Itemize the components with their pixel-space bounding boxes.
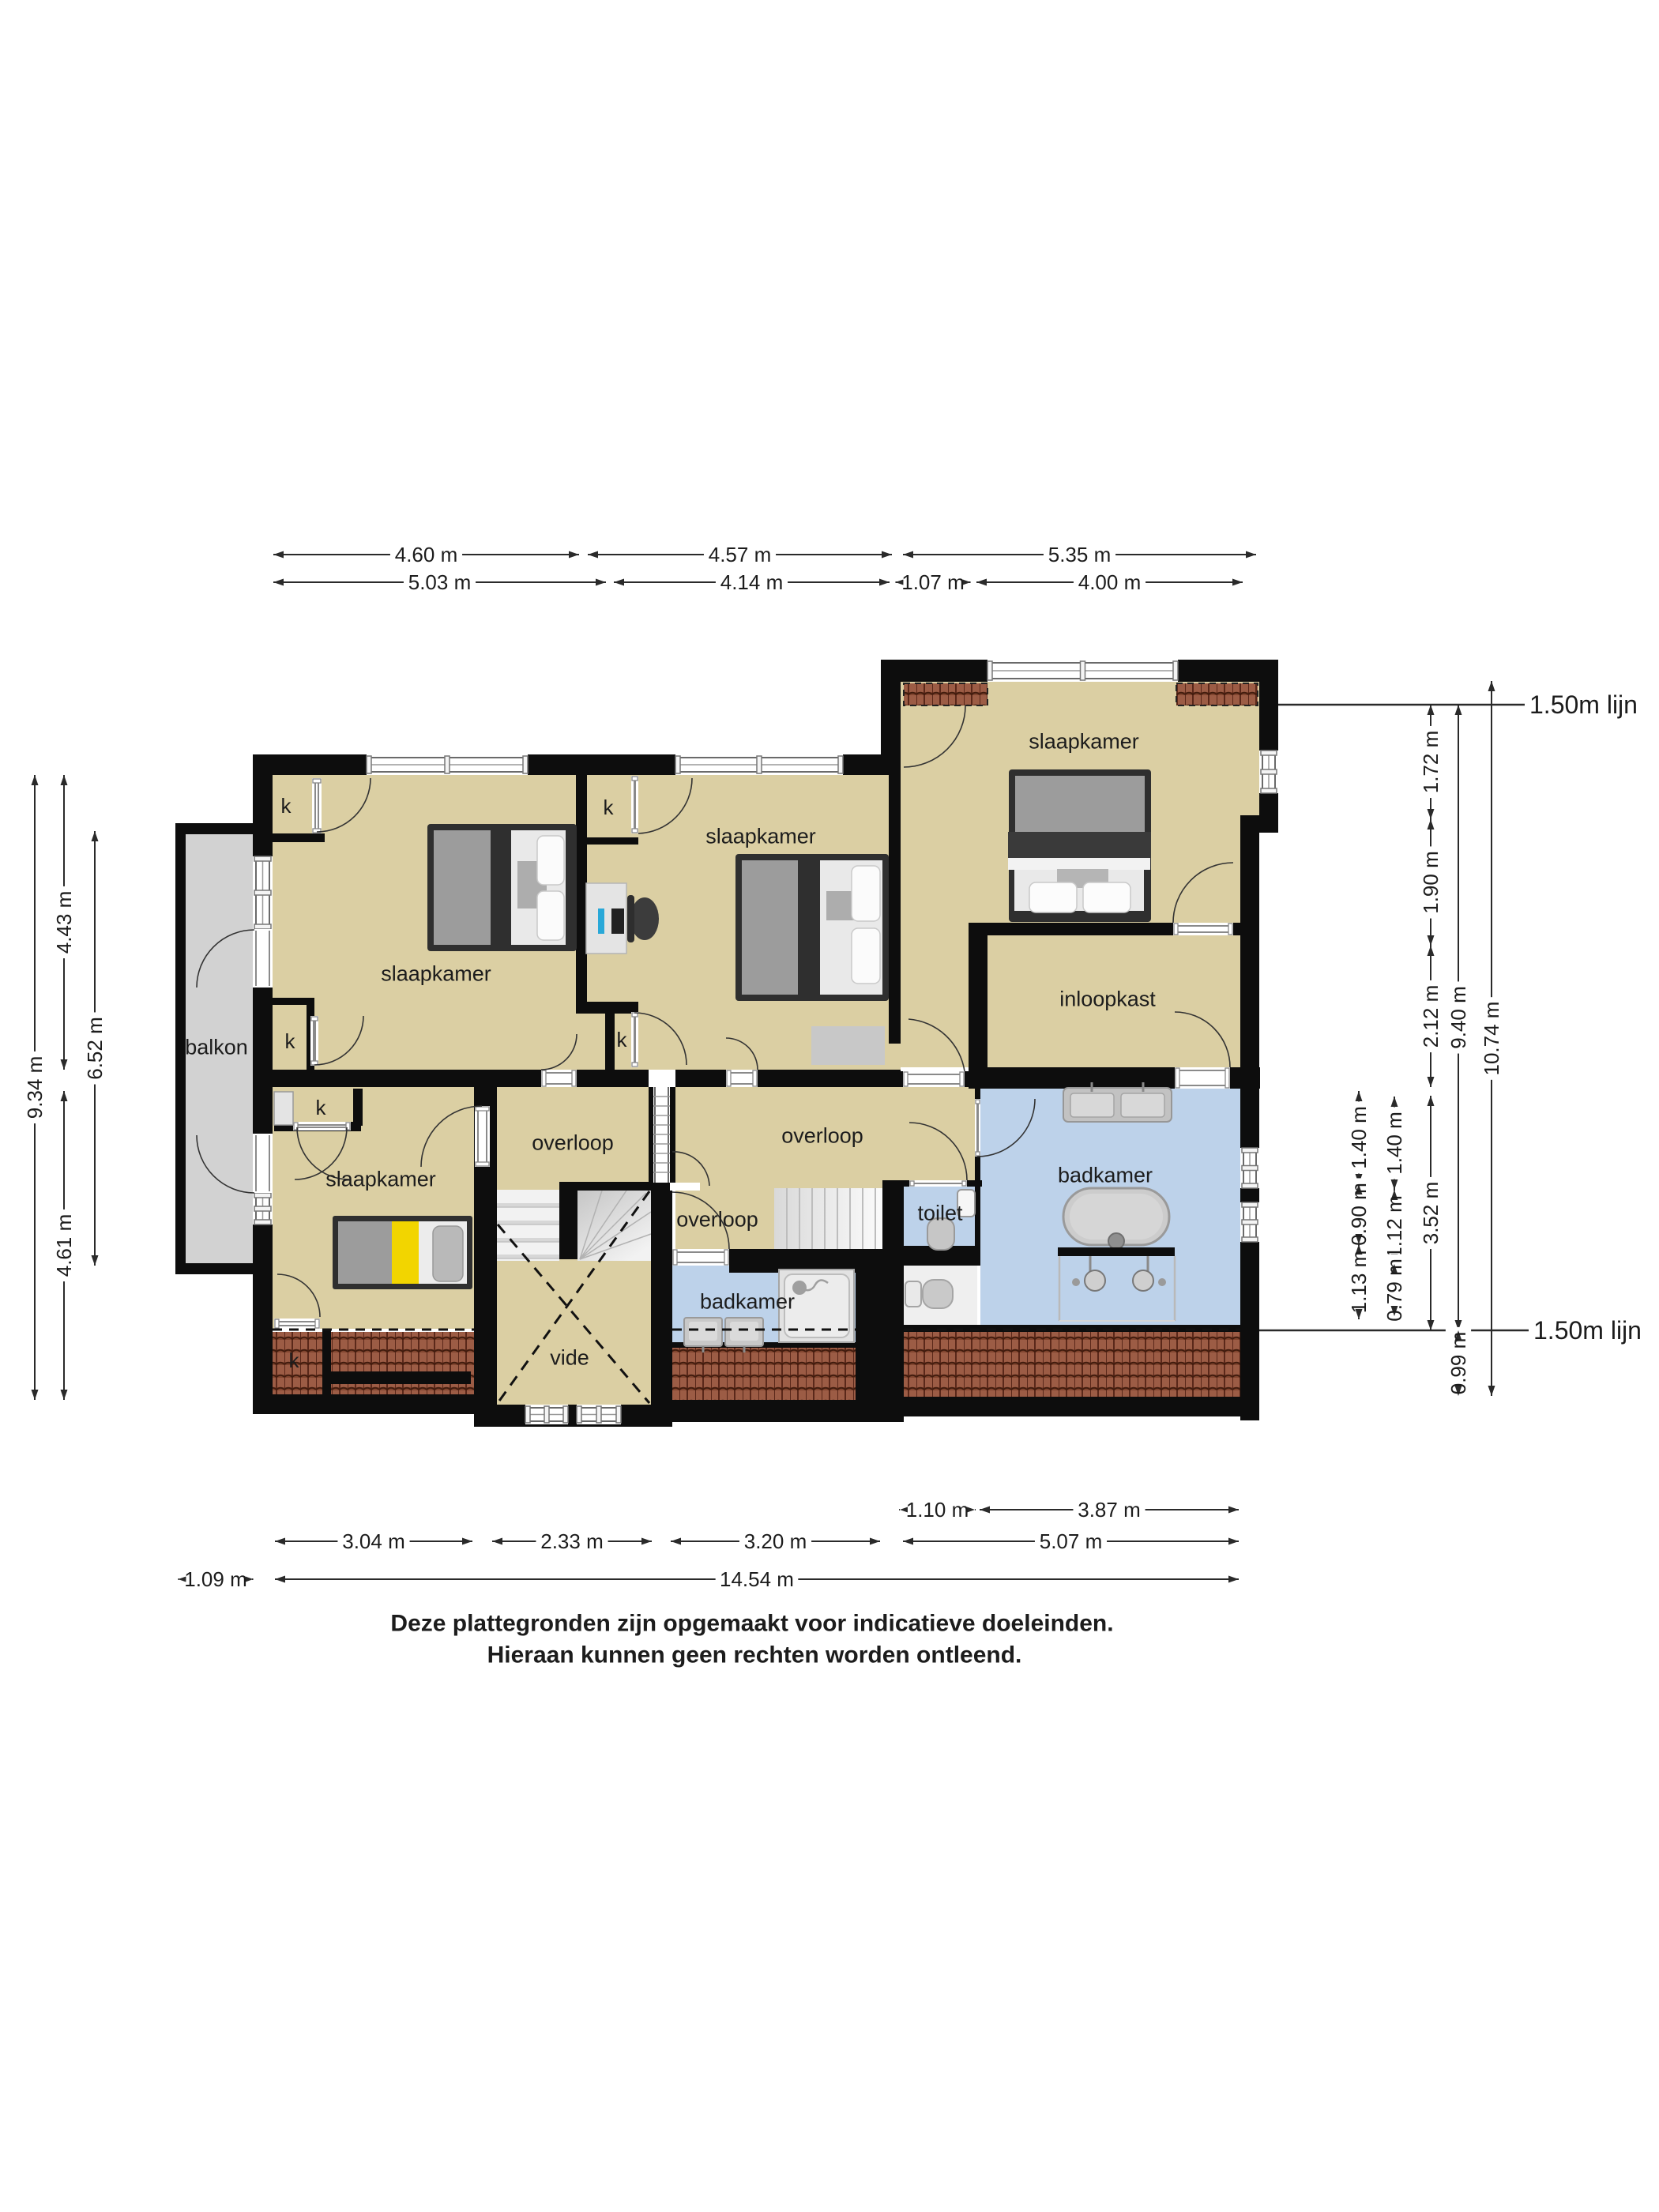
svg-text:9.34 m: 9.34 m <box>23 1056 47 1119</box>
svg-text:1.40 m: 1.40 m <box>1382 1112 1406 1175</box>
svg-text:k: k <box>316 1096 327 1119</box>
svg-text:balkon: balkon <box>185 1035 248 1059</box>
svg-text:overloop: overloop <box>532 1130 614 1154</box>
svg-text:Deze plattegronden zijn opgema: Deze plattegronden zijn opgemaakt voor i… <box>390 1611 1113 1637</box>
svg-text:4.43 m: 4.43 m <box>52 891 76 954</box>
svg-text:14.54 m: 14.54 m <box>720 1567 794 1591</box>
svg-text:slaapkamer: slaapkamer <box>1029 729 1139 753</box>
svg-text:0.79 m: 0.79 m <box>1382 1258 1406 1322</box>
svg-text:2.33 m: 2.33 m <box>540 1529 604 1553</box>
svg-text:9.40 m: 9.40 m <box>1446 986 1470 1049</box>
svg-text:0.90 m: 0.90 m <box>1347 1183 1371 1246</box>
svg-text:slaapkamer: slaapkamer <box>705 824 816 848</box>
svg-text:4.57 m: 4.57 m <box>709 543 772 566</box>
svg-text:5.35 m: 5.35 m <box>1048 543 1112 566</box>
svg-text:k: k <box>604 796 615 819</box>
svg-text:overloop: overloop <box>676 1207 758 1231</box>
svg-text:k: k <box>285 1029 296 1053</box>
svg-text:k: k <box>289 1349 300 1372</box>
svg-text:10.74 m: 10.74 m <box>1480 1002 1503 1076</box>
svg-text:5.07 m: 5.07 m <box>1040 1529 1103 1553</box>
svg-text:toilet: toilet <box>917 1201 963 1224</box>
svg-text:1.50m lijn: 1.50m lijn <box>1529 690 1638 719</box>
svg-text:k: k <box>281 794 292 818</box>
svg-text:1.07 m: 1.07 m <box>901 570 965 594</box>
svg-text:1.10 m: 1.10 m <box>906 1498 969 1522</box>
svg-text:slaapkamer: slaapkamer <box>325 1167 436 1191</box>
svg-text:3.87 m: 3.87 m <box>1078 1498 1141 1522</box>
svg-text:1.72 m: 1.72 m <box>1419 731 1443 794</box>
svg-text:5.03 m: 5.03 m <box>408 570 472 594</box>
svg-text:4.61 m: 4.61 m <box>52 1214 76 1277</box>
svg-text:4.00 m: 4.00 m <box>1078 570 1142 594</box>
svg-text:3.52 m: 3.52 m <box>1419 1182 1443 1245</box>
svg-text:inloopkast: inloopkast <box>1059 987 1156 1010</box>
svg-text:badkamer: badkamer <box>1058 1163 1153 1187</box>
svg-text:4.14 m: 4.14 m <box>720 570 784 594</box>
svg-text:0.99 m: 0.99 m <box>1446 1332 1470 1395</box>
svg-text:1.12 m: 1.12 m <box>1382 1195 1406 1258</box>
svg-text:4.60 m: 4.60 m <box>395 543 458 566</box>
svg-text:1.50m lijn: 1.50m lijn <box>1533 1316 1642 1345</box>
svg-text:slaapkamer: slaapkamer <box>381 961 491 985</box>
svg-text:Hieraan kunnen geen rechten wo: Hieraan kunnen geen rechten worden ontle… <box>487 1642 1022 1668</box>
svg-text:2.12 m: 2.12 m <box>1419 985 1443 1048</box>
svg-text:k: k <box>617 1028 628 1051</box>
svg-text:badkamer: badkamer <box>700 1289 795 1313</box>
svg-text:6.52 m: 6.52 m <box>83 1017 107 1080</box>
svg-text:1.90 m: 1.90 m <box>1419 851 1443 914</box>
svg-text:3.20 m: 3.20 m <box>744 1529 807 1553</box>
svg-text:1.13 m: 1.13 m <box>1347 1251 1371 1314</box>
svg-text:1.40 m: 1.40 m <box>1347 1106 1371 1169</box>
svg-text:vide: vide <box>550 1345 589 1369</box>
svg-text:overloop: overloop <box>781 1123 863 1147</box>
svg-text:3.04 m: 3.04 m <box>342 1529 405 1553</box>
svg-text:1.09 m: 1.09 m <box>184 1567 247 1591</box>
